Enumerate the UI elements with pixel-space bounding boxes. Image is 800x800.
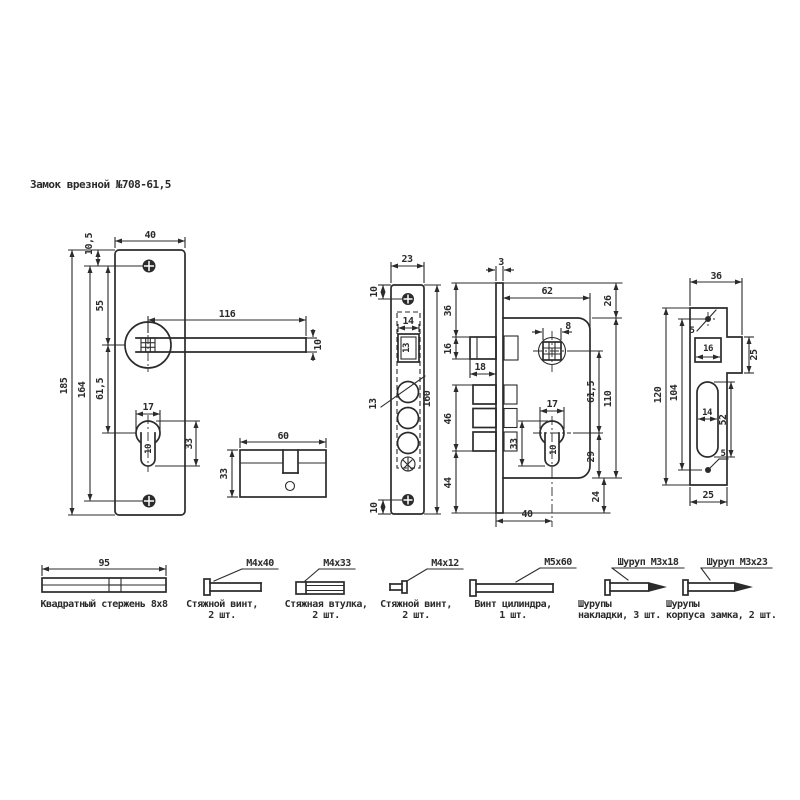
screw-icon (402, 293, 414, 305)
escutcheon-plate-outline (115, 250, 185, 515)
hardware-square-rod: 95 Квадратный стержень 8х8 (41, 558, 168, 610)
dim-body-depth: 62 (541, 286, 553, 297)
dim-faceplate-width: 23 (401, 254, 413, 265)
hardware-size: М4х33 (323, 558, 351, 569)
dim-plate-width: 40 (144, 230, 156, 241)
dim-keyhole-width: 17 (546, 399, 558, 410)
dim-slot-width: 14 (702, 408, 713, 418)
drawing-sheet: Замок врезной №708-61,5 (0, 0, 800, 800)
view-lock-side: 36 16 46 44 18 3 62 26 110 61,5 29 24 8 (443, 257, 622, 527)
dim-faceplate-height: 160 (422, 390, 433, 407)
dim-keyhole-height: 33 (509, 438, 520, 450)
dim-keyhole-slot: 10 (144, 444, 154, 454)
hardware-qty: 2 шт. (402, 610, 430, 621)
keyhole-profile (540, 421, 564, 466)
hardware-label: Шурупы (578, 599, 612, 610)
dim-handle-to-cylinder: 61,5 (95, 377, 106, 400)
dim-keyhole-slot: 10 (549, 445, 559, 455)
dim-faceplate-thickness: 3 (498, 257, 504, 268)
screw-icon (143, 495, 156, 508)
deadbolt-pin-hole (398, 433, 419, 454)
dim-latch-throw: 18 (474, 362, 486, 373)
dim-holes-span: 104 (669, 384, 680, 401)
hardware-cylinder-screw-m5x60: М5х60 Винт цилиндра, 1 шт. (470, 557, 576, 621)
dim-screw-to-handle: 55 (95, 300, 106, 312)
dim-body-height: 110 (603, 390, 614, 407)
dim-hole-top: 5 (690, 326, 695, 336)
dim-strike-height: 120 (653, 386, 664, 403)
hardware-size: М4х40 (246, 558, 274, 569)
hardware-label: Винт цилиндра, (474, 599, 551, 610)
dim-total-width: 36 (710, 271, 722, 282)
dim-keyhole-width: 17 (142, 402, 154, 413)
hardware-size: М5х60 (544, 557, 572, 568)
dim-bottom: 44 (443, 477, 454, 489)
hardware-label: Стяжной винт, (186, 598, 258, 610)
dim-top-offset: 10,5 (84, 232, 95, 255)
dim-lip: 25 (749, 349, 760, 361)
dim-latch-height: 16 (443, 343, 454, 355)
dim-screw-spacing: 164 (77, 381, 88, 398)
dim-keyhole-height: 33 (184, 438, 195, 450)
hardware-label: Шурупы (666, 599, 700, 610)
hardware-size: Шуруп М3х18 (618, 557, 679, 568)
hardware-label: Стяжная втулка, (285, 599, 368, 610)
dim-top-margin: 26 (603, 295, 614, 307)
dim-axes-distance: 61,5 (586, 380, 597, 403)
hardware-size: Шуруп М3х23 (707, 557, 768, 568)
hardware-label: Квадратный стержень 8х8 (41, 598, 168, 610)
dim-bottom-screw: 10 (369, 502, 380, 514)
dim-plate-width: 25 (702, 490, 714, 501)
view-faceplate-front: 13 13 23 10 14 160 10 (368, 254, 441, 514)
hardware-qty: накладки, 3 шт. (578, 610, 661, 621)
dim-plate-height: 185 (59, 377, 70, 394)
hardware-size: М4х12 (431, 558, 459, 569)
deadbolt-pins (473, 385, 496, 451)
cylinder-cam (286, 482, 295, 491)
hardware-qty: 2 шт. (312, 610, 340, 621)
dim-top-screw: 10 (369, 286, 380, 298)
dim-cylinder-length: 60 (277, 431, 289, 442)
deadbolt-pin-hole (398, 408, 419, 429)
dim-latch-width: 14 (402, 316, 414, 327)
faceplate-edge (496, 283, 503, 513)
dim-handle-height: 10 (313, 339, 324, 351)
dim-hole-bottom: 5 (721, 449, 726, 459)
hardware-tie-bolt-m4x12: М4х12 Стяжной винт, 2 шт. (380, 558, 463, 621)
deadbolt-pin-hole (398, 382, 419, 403)
leader-line (697, 310, 716, 331)
screw-icon (143, 260, 156, 273)
dim-top-to-latch: 36 (443, 305, 454, 317)
view-cylinder-detail: 60 33 (219, 431, 326, 497)
hardware-qty: 2 шт. (208, 610, 236, 621)
dim-pin-diameter: 13 (368, 398, 379, 410)
screw-hole (705, 459, 728, 473)
hardware-tie-bolt-m4x40: М4х40 Стяжной винт, 2 шт. (186, 558, 278, 621)
dim-bottom-margin: 24 (591, 491, 602, 503)
dim-latch-hole: 16 (703, 344, 713, 354)
dim-spindle: 8 (565, 321, 571, 332)
dim-backset: 40 (521, 509, 533, 520)
knurled-screw (401, 457, 415, 471)
hardware-qty: корпуса замка, 2 шт. (666, 610, 776, 621)
hardware-tie-sleeve-m4x33: М4х33 Стяжная втулка, 2 шт. (285, 558, 368, 621)
dim-rod-length: 95 (98, 558, 110, 569)
dim-handle-length: 116 (219, 309, 236, 320)
lock-technical-drawing: Замок врезной №708-61,5 (0, 0, 800, 800)
dim-cylinder-height: 33 (219, 468, 230, 480)
dim-latch-mark: 13 (402, 343, 412, 353)
view-strike-plate: 5 16 14 52 5 120 104 36 25 25 (653, 271, 760, 506)
latch-bolt (470, 337, 496, 359)
hardware-label: Стяжной винт, (380, 598, 452, 610)
screw-icon (402, 494, 414, 506)
hardware-qty: 1 шт. (499, 610, 527, 621)
dim-slot-height: 52 (718, 414, 729, 426)
hardware-wood-screw-m3x23: Шуруп М3х23 Шурупы корпуса замка, 2 шт. (666, 557, 776, 621)
dim-bolt-span: 46 (443, 413, 454, 425)
drawing-title: Замок врезной №708-61,5 (30, 178, 171, 191)
dim-cyl-to-bottom: 29 (586, 451, 597, 463)
